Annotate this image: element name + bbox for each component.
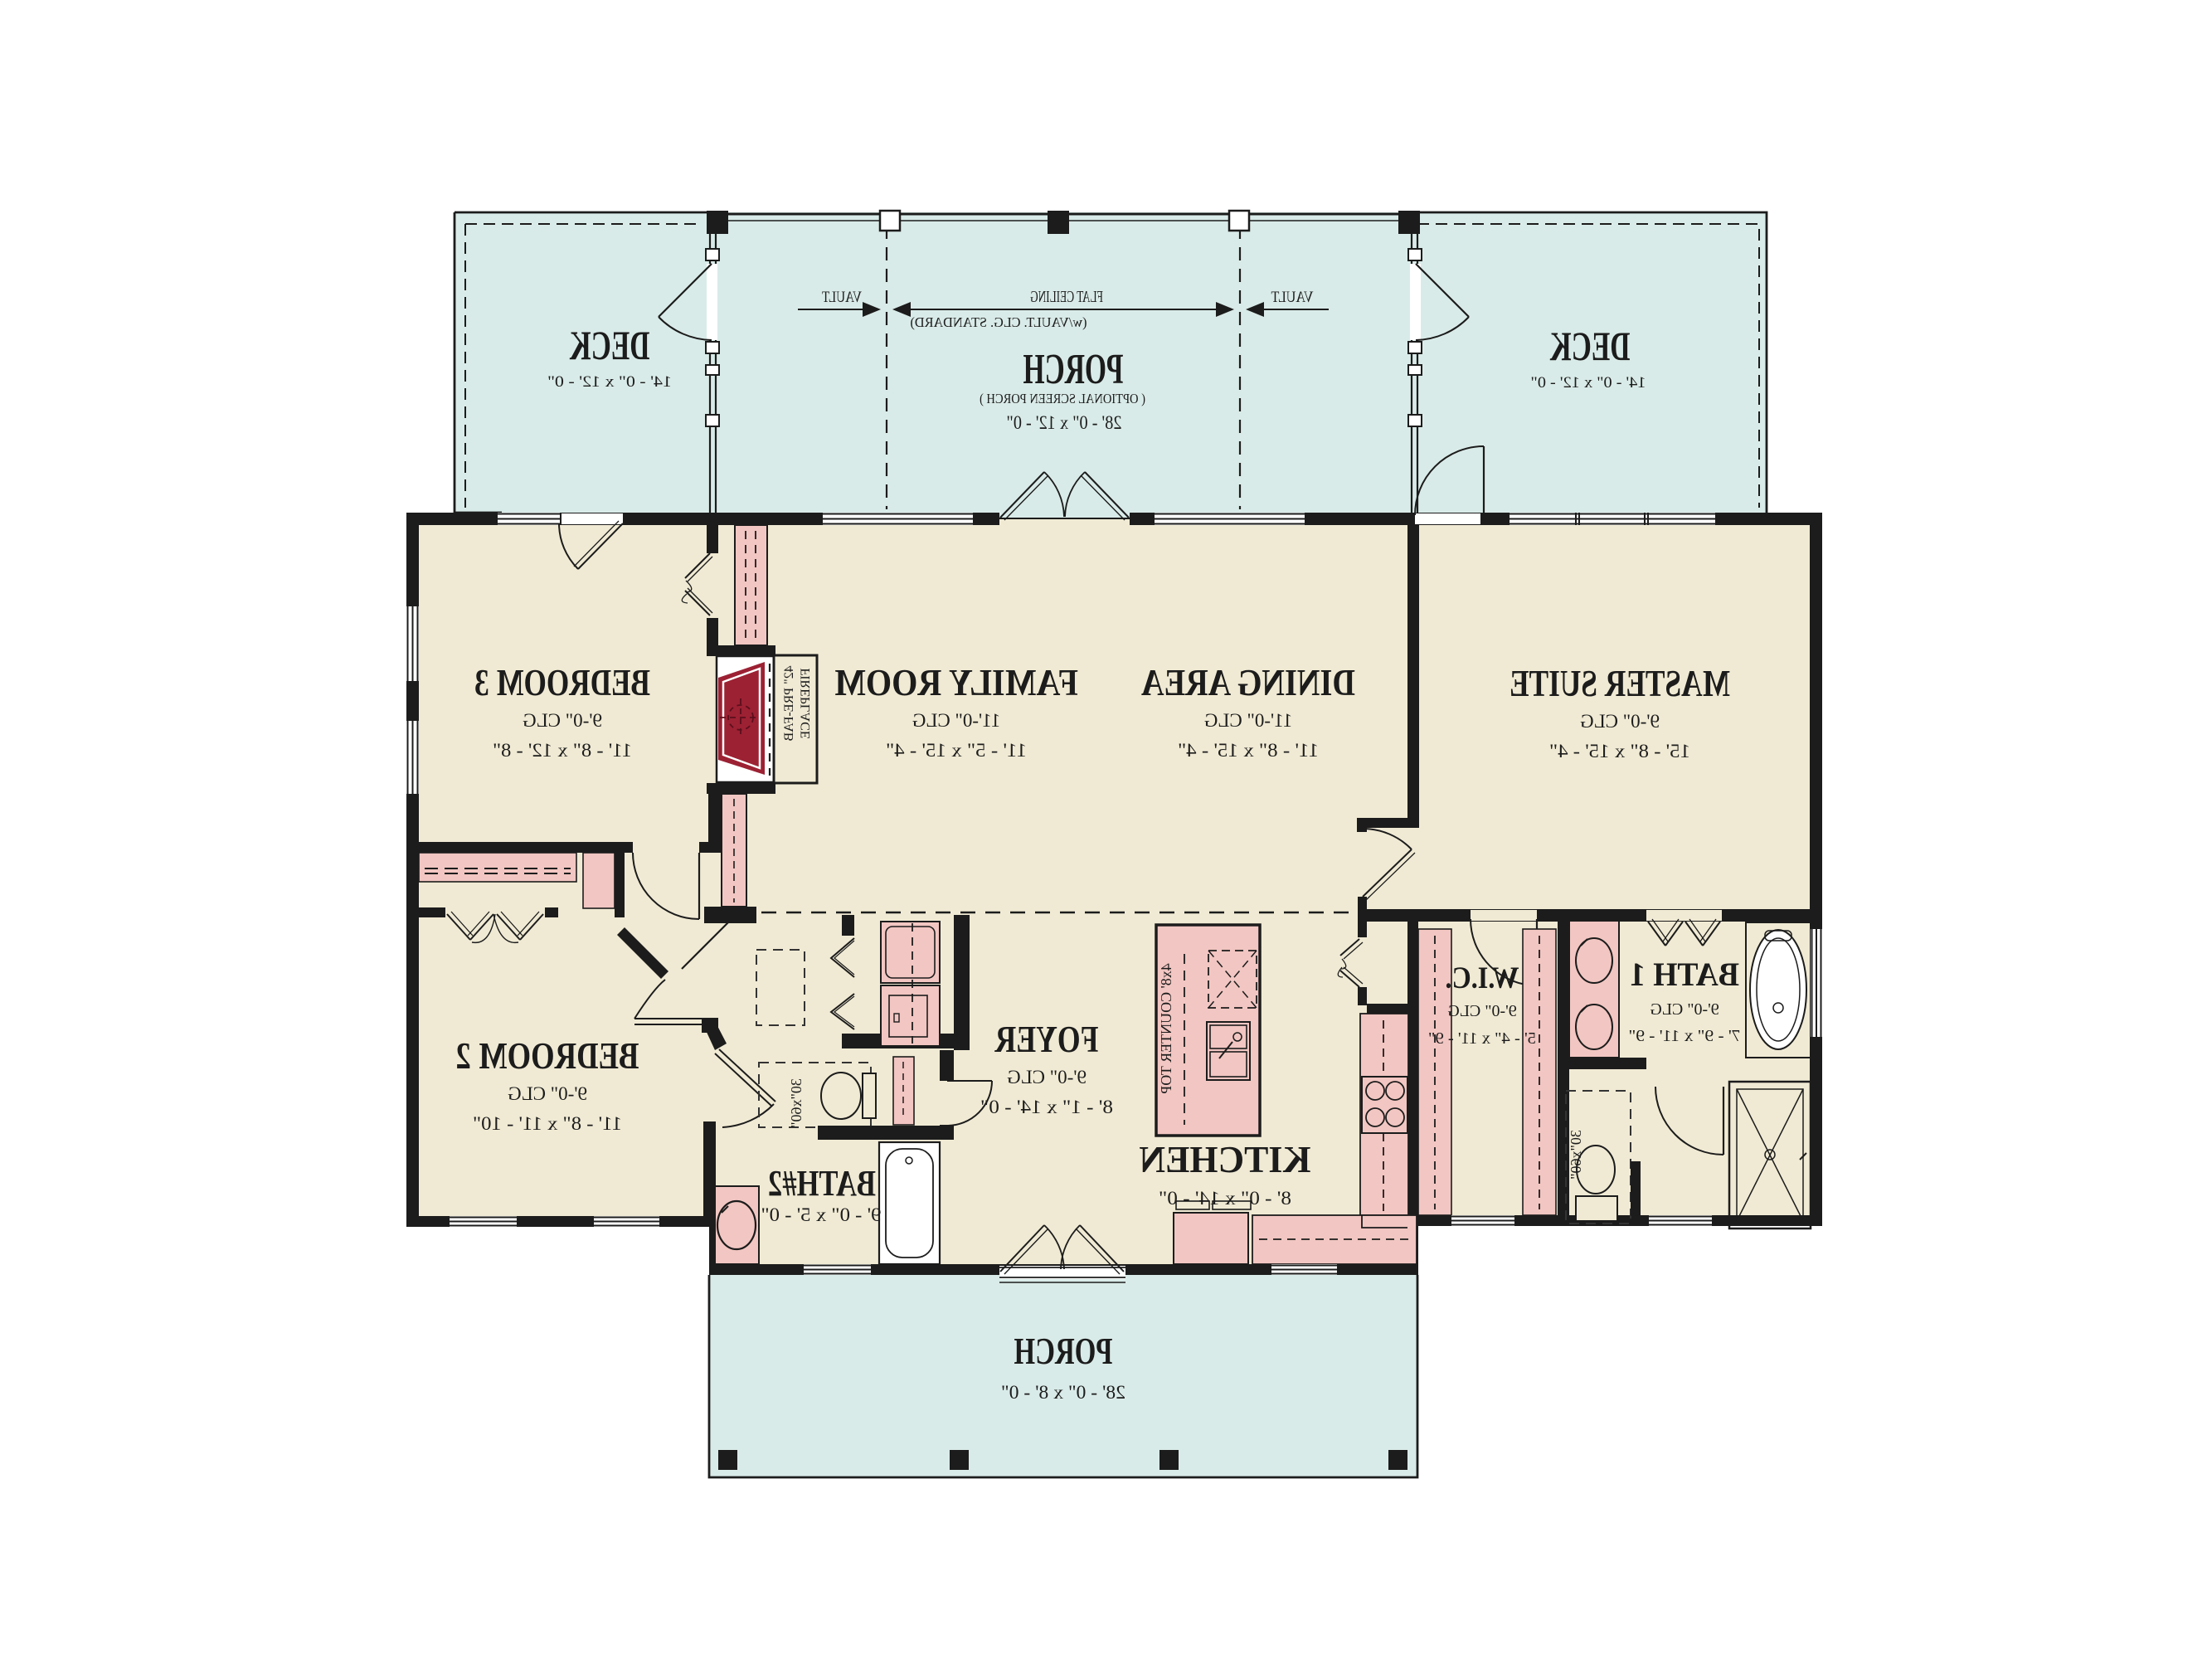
svg-text:11' - 8" x 11' - 10": 11' - 8" x 11' - 10" <box>473 1113 622 1134</box>
svg-text:15' - 8" x 15' - 4": 15' - 8" x 15' - 4" <box>1549 741 1690 761</box>
svg-text:11' - 8" x 12' - 8": 11' - 8" x 12' - 8" <box>493 740 632 761</box>
svg-text:42" PRE-FAB: 42" PRE-FAB <box>782 665 796 741</box>
svg-text:PORCH: PORCH <box>1023 346 1124 393</box>
svg-text:7' - 9" x 11' - 9": 7' - 9" x 11' - 9" <box>1629 1027 1741 1045</box>
svg-text:5' - 4" x 11' - 9": 5' - 4" x 11' - 9" <box>1428 1029 1536 1048</box>
svg-text:W.I.C.: W.I.C. <box>1446 961 1519 995</box>
svg-text:MASTER SUITE: MASTER SUITE <box>1510 662 1730 704</box>
svg-text:9'-0" CLG: 9'-0" CLG <box>1007 1067 1087 1087</box>
svg-text:VAULT: VAULT <box>822 289 862 306</box>
svg-text:28' - 0" x 12' - 0": 28' - 0" x 12' - 0" <box>1007 412 1122 433</box>
svg-text:(w/VAULT. CLG. STANDARD): (w/VAULT. CLG. STANDARD) <box>911 314 1087 330</box>
svg-text:KITCHEN: KITCHEN <box>1140 1138 1311 1180</box>
svg-text:11' - 5" x 15' - 4": 11' - 5" x 15' - 4" <box>886 740 1027 761</box>
svg-text:4x8' COUNTER TOP: 4x8' COUNTER TOP <box>1158 963 1174 1094</box>
svg-text:VAULT: VAULT <box>1271 289 1313 306</box>
svg-text:9'-0" CLG: 9'-0" CLG <box>1650 1000 1719 1019</box>
svg-text:9'-0" CLG: 9'-0" CLG <box>523 710 602 731</box>
svg-text:BEDROOM 3: BEDROOM 3 <box>474 661 650 703</box>
svg-text:DECK: DECK <box>569 322 649 368</box>
svg-text:PORCH: PORCH <box>1014 1330 1112 1372</box>
svg-text:30"x60": 30"x60" <box>788 1078 805 1128</box>
svg-text:11'-0" CLG: 11'-0" CLG <box>1204 710 1293 731</box>
svg-text:BATH#2: BATH#2 <box>768 1163 876 1204</box>
svg-text:9'-0" CLG: 9'-0" CLG <box>1580 711 1660 732</box>
svg-text:11'-0" CLG: 11'-0" CLG <box>912 710 1001 731</box>
svg-text:14' - 0" x 12' - 0": 14' - 0" x 12' - 0" <box>547 373 672 391</box>
svg-text:8' - 0" x 14' - 0": 8' - 0" x 14' - 0" <box>1159 1188 1291 1209</box>
svg-text:BEDROOM 2: BEDROOM 2 <box>456 1034 639 1077</box>
svg-text:9'-0" CLG: 9'-0" CLG <box>508 1083 587 1104</box>
svg-text:DINING AREA: DINING AREA <box>1141 661 1355 703</box>
svg-text:( OPTIONAL SCREEN PORCH ): ( OPTIONAL SCREEN PORCH ) <box>980 391 1145 406</box>
svg-text:9'-0" CLG: 9'-0" CLG <box>1447 1002 1516 1020</box>
svg-text:9' - 0" x 5' - 0": 9' - 0" x 5' - 0" <box>761 1204 882 1225</box>
svg-text:30"x60": 30"x60" <box>1568 1130 1584 1180</box>
svg-text:FLAT CEILING: FLAT CEILING <box>1030 288 1103 306</box>
svg-text:28' - 0" x 8' - 0": 28' - 0" x 8' - 0" <box>1001 1382 1125 1403</box>
svg-text:FAMILY ROOM: FAMILY ROOM <box>834 661 1078 703</box>
svg-text:14' - 0" x 12' - 0": 14' - 0" x 12' - 0" <box>1531 374 1646 392</box>
svg-text:8' - 1" x 14' - 0": 8' - 1" x 14' - 0" <box>980 1097 1113 1117</box>
svg-text:FIREPLACE: FIREPLACE <box>799 668 813 738</box>
svg-text:BATH 1: BATH 1 <box>1630 956 1739 993</box>
svg-text:FOYER: FOYER <box>994 1018 1099 1060</box>
svg-text:DECK: DECK <box>1549 323 1630 369</box>
svg-text:11' - 8" x 15' - 4": 11' - 8" x 15' - 4" <box>1178 740 1319 761</box>
